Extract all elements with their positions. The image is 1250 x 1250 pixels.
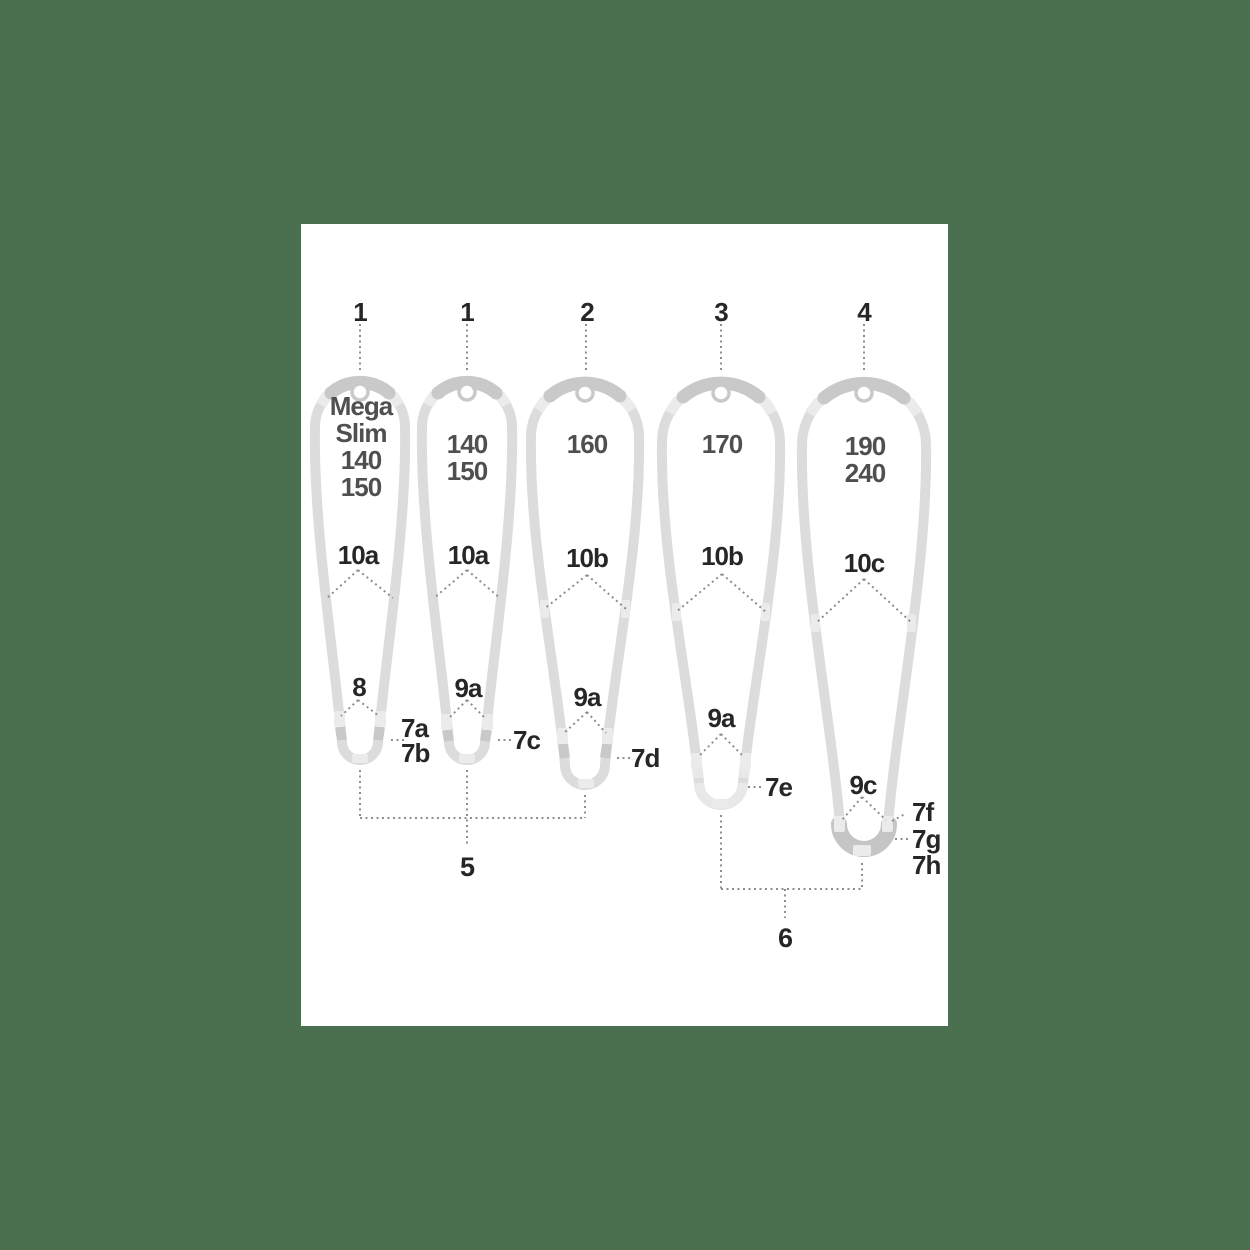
joint-tab [334,711,345,727]
lacing-ring-icon [713,385,729,401]
spacer-callout-v [564,712,606,733]
parts-diagram: 1 Mega Slim 140 150 10a 8 7a 7b 1 140 15… [301,224,948,1026]
size-label: Mega [330,391,394,421]
frame-joint-segment [563,744,565,758]
rail-pad [540,600,549,618]
group-label-6: 6 [778,923,793,953]
bottom-tab [578,779,594,788]
spacer-label: 9a [455,673,483,703]
joint-tab [882,816,893,832]
spacer-label: 9a [574,682,602,712]
top-label: 1 [353,297,367,327]
clip-side-segment [763,400,772,413]
clip-side-segment [810,401,820,414]
size-label: 160 [567,429,608,459]
part-label-7c: 7c [513,725,540,755]
lacing-ring-icon [577,385,593,401]
top-label: 4 [857,297,872,327]
bottom-tab [853,845,871,856]
part-label-7f: 7f [912,797,934,827]
rail-callout-v [676,574,766,612]
spacer-label: 9c [850,770,877,800]
group-label-5: 5 [460,852,475,882]
rail-pad [761,603,770,621]
frame-joint-segment [744,768,745,778]
rail-callout-v [544,575,626,609]
clip-side-segment [670,400,679,413]
bottom-tab [459,754,475,763]
frame-joint-segment [447,730,449,741]
rail-pad [811,614,820,632]
top-label: 2 [580,297,594,327]
rail-pad [907,614,916,632]
part-label-7b: 7b [401,738,429,768]
lacing-ring-icon [459,384,475,400]
frame-joint-segment [340,727,342,740]
bottom-tab [712,799,728,808]
spacer-callout-v [341,700,379,716]
rail-label: 10a [338,540,380,570]
frame-joint-segment [485,730,487,741]
joint-tab [740,753,751,769]
size-label: 140 [341,445,382,475]
rail-callout-v [816,579,912,623]
spacer-callout-v [698,734,744,757]
joint-tab [691,753,702,769]
size-label: 150 [447,456,488,486]
top-label: 1 [460,297,474,327]
rail-label: 10a [448,540,490,570]
frame-joint-segment [378,727,380,740]
rail-label: 10c [844,548,885,578]
bottom-tab [352,754,368,763]
group-connectors: 5 6 [360,818,862,953]
frame-3: 2 160 10b 9a 7d [531,297,660,818]
rail-label: 10b [701,541,743,571]
lacing-ring-icon [856,385,872,401]
frame-2: 1 140 150 10a 9a 7c [422,297,541,845]
size-label: 150 [341,472,382,502]
joint-tab [602,728,613,744]
part-label-7d: 7d [631,743,659,773]
rail-callout-v [327,570,393,598]
spacer-callout-v [842,797,886,820]
frame-1: 1 Mega Slim 140 150 10a 8 7a 7b [315,297,430,818]
rail-callout-v [434,570,500,598]
size-label: Slim [336,418,387,448]
frame-5: 4 190 240 10c 9c 7f 7g 7h [802,297,941,889]
size-label: 240 [845,458,886,488]
frame-joint-segment [697,768,698,778]
size-label: 190 [845,431,886,461]
size-label: 170 [702,429,743,459]
spacer-label: 9a [708,703,736,733]
part-label-7h: 7h [912,850,940,880]
rail-label: 10b [566,543,608,573]
rail-pad [672,603,681,621]
top-label: 3 [714,297,728,327]
size-label: 140 [447,429,488,459]
clip-side-segment [908,401,918,414]
frame-joint-segment [605,744,607,758]
frame-4: 3 170 10b 9a 7e [662,297,793,889]
diagram-panel: 1 Mega Slim 140 150 10a 8 7a 7b 1 140 15… [301,224,948,1026]
part-label-7e: 7e [765,772,792,802]
spacer-label: 8 [352,672,366,702]
